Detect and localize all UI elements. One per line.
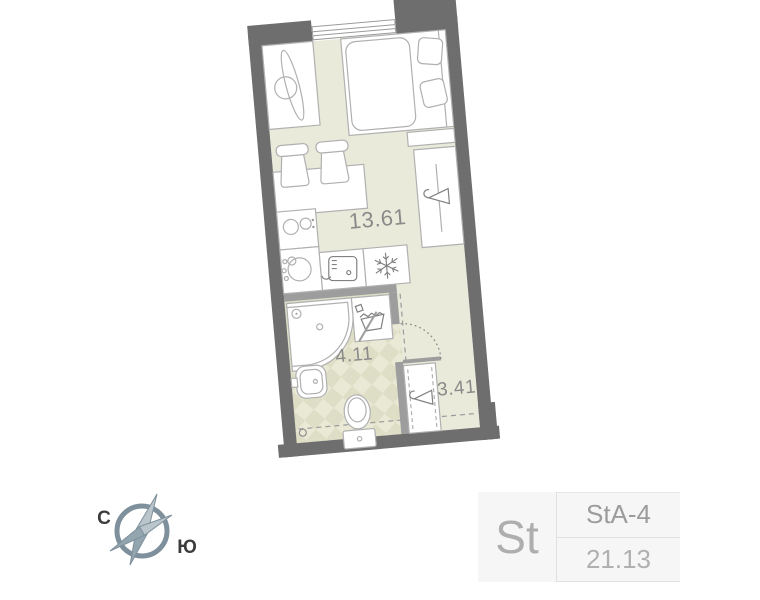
door-stop: [299, 429, 307, 437]
tv-bench: [407, 128, 455, 146]
stool: [316, 140, 352, 185]
compass-north-label: С: [93, 508, 115, 530]
floor-plan: 13.61 4.11 3.41: [248, 16, 494, 458]
stool: [276, 143, 312, 188]
sofa-bed: [341, 30, 454, 136]
kitchen-sink-round: [280, 247, 323, 294]
apartment-info-card: St StA-4 21.13: [478, 492, 680, 582]
bathroom-door-arc: [400, 321, 441, 362]
wardrobe-with-mirror: [262, 41, 320, 129]
total-area-label: 21.13: [557, 538, 680, 583]
plan-type-label: St: [478, 492, 557, 582]
toilet: [340, 394, 376, 450]
kitchen-sink: [319, 249, 366, 291]
closet: [414, 146, 464, 247]
compass-south-label: Ю: [176, 537, 198, 559]
cooktop: [277, 209, 319, 250]
plan-code-label: StA-4: [557, 492, 680, 538]
info-card-details: StA-4 21.13: [557, 492, 680, 582]
fridge: [363, 245, 410, 287]
